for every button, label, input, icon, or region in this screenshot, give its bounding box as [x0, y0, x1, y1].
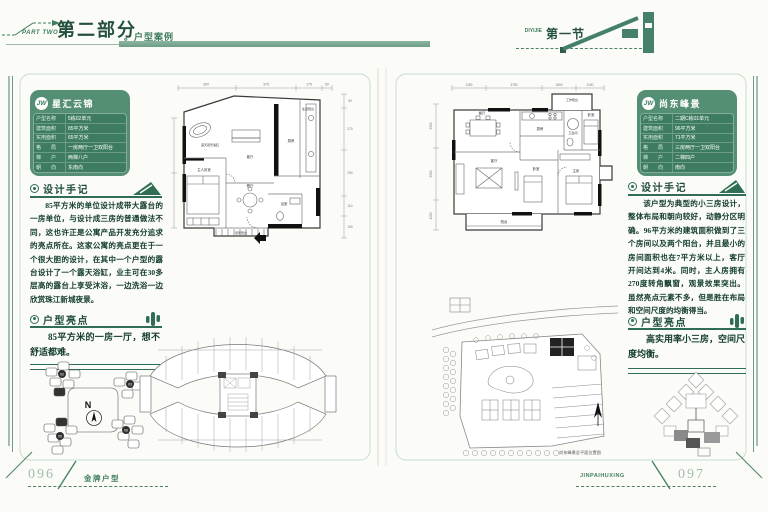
spec-value: 65平方米: [66, 134, 126, 141]
outer-walls: [184, 96, 320, 236]
svg-text:厨房: 厨房: [288, 138, 295, 143]
spec-value: 71平方米: [673, 134, 733, 141]
offsite-building: [450, 298, 470, 312]
svg-text:06: 06: [124, 428, 128, 432]
svg-text:厨房: 厨房: [537, 126, 544, 131]
footer-slash: [58, 461, 76, 489]
svg-text:卧室: 卧室: [533, 166, 540, 171]
right-unit-floorplan: 1150 3750 1800 1100 3300 3900 1200: [424, 80, 616, 238]
ring-bullet-icon: [628, 182, 637, 191]
right-site-plan: 尚东峰景总平面位置图: [432, 296, 618, 458]
right-design-notes-heading: 设计手记: [628, 178, 746, 195]
svg-text:375: 375: [263, 83, 269, 87]
svg-text:3900: 3900: [429, 170, 433, 177]
ring-bullet-icon: [628, 317, 637, 326]
spec-label: 户型名称: [34, 114, 66, 123]
table-row: 朝 向南向: [641, 163, 733, 172]
heading-rule: [30, 196, 162, 198]
svg-text:1200: 1200: [429, 212, 433, 219]
site-boundary: [460, 334, 604, 448]
left-plate-plan: [136, 318, 340, 468]
svg-text:150: 150: [347, 225, 353, 229]
table-row: 户型名称二期C栋01单元: [641, 114, 733, 124]
spec-label: 梯 户: [641, 153, 673, 162]
table-row: 格 局一房两厅一卫双阳台: [34, 143, 126, 153]
spec-value: 三房两厅一卫双阳台: [673, 144, 733, 151]
spec-value: 二期C栋01单元: [673, 115, 733, 122]
left-footer-label: 金牌户型: [84, 473, 120, 484]
table-row: 实用面积65平方米: [34, 134, 126, 144]
svg-text:工作阳台: 工作阳台: [566, 97, 578, 102]
right-footer-label: JINPAIHUXING: [580, 473, 625, 479]
table-row: 梯 户二梯四户: [641, 153, 733, 163]
table-row: 户型名称5栋02单元: [34, 114, 126, 124]
header-rule: [6, 44, 119, 45]
dash-arrow-icon: [2, 16, 64, 42]
book-spread: { "header": { "part_en": "PART TWO", "pa…: [0, 0, 768, 512]
svg-text:卫生间: 卫生间: [568, 130, 577, 135]
left-project-title: 星汇云锦: [52, 97, 94, 110]
svg-text:主卧: 主卧: [573, 168, 580, 173]
right-card-header: JW 尚东峰景: [640, 93, 734, 113]
footer-dash-rule: [28, 486, 168, 487]
spec-value: 东南向: [66, 164, 126, 171]
left-key-plan: 02 03 05 06 N: [36, 354, 146, 464]
svg-text:浴室: 浴室: [281, 201, 288, 206]
footer-dash-rule: [576, 486, 716, 487]
svg-text:1150: 1150: [466, 83, 473, 87]
right-info-card: JW 尚东峰景 户型名称二期C栋01单元 建筑面积96平方米 实用面积71平方米…: [637, 90, 737, 176]
svg-text:N: N: [85, 400, 92, 410]
spec-value: 南向: [673, 164, 733, 171]
svg-text:1800: 1800: [555, 83, 562, 87]
spec-label: 建筑面积: [34, 124, 66, 133]
right-highlight-body: 高实用率小三房，空间尺度均衡。: [628, 332, 745, 362]
spec-label: 朝 向: [641, 163, 673, 172]
svg-text:270: 270: [347, 127, 353, 131]
svg-text:03: 03: [128, 382, 132, 386]
unit-cluster-nw: [46, 362, 80, 396]
roof-house-icon: [132, 180, 162, 197]
svg-text:餐厅: 餐厅: [247, 183, 254, 188]
left-spec-table: 户型名称5栋02单元 建筑面积85平方米 实用面积65平方米 格 局一房两厅一卫…: [33, 113, 127, 173]
section-title: 户型亮点: [641, 314, 687, 329]
spec-label: 实用面积: [641, 134, 673, 143]
table-row: 朝 向东南向: [34, 163, 126, 172]
spec-label: 实用面积: [34, 134, 66, 143]
site-plan-caption: 尚东峰景总平面位置图: [559, 449, 601, 456]
spec-value: 两梯八户: [66, 154, 126, 161]
plate-core: [674, 408, 720, 456]
left-design-notes-body: 85平方米的单位设计成带大露台的一房单位，与设计成三房的普通做法不同，这也许正是…: [30, 199, 163, 306]
left-page-number: 096: [28, 467, 55, 483]
brand-logo-icon: JW: [642, 97, 655, 110]
svg-text:3300: 3300: [429, 122, 433, 129]
right-key-plate: [646, 364, 746, 466]
plate-outline: [140, 345, 336, 448]
spec-value: 一房两厅一卫双阳台: [66, 144, 126, 151]
right-design-notes-body: 该户型为典型的小三房设计，整体布局和朝向较好，动静分区明确。96平方米的建筑面积…: [628, 197, 745, 318]
spec-value: 96平方米: [673, 125, 733, 132]
left-info-card: JW 星汇云锦 户型名称5栋02单元 建筑面积85平方米 实用面积65平方米 格…: [30, 90, 130, 176]
left-design-notes-heading: 设计手记: [30, 180, 162, 197]
svg-text:餐厅: 餐厅: [479, 111, 486, 116]
svg-text:观景阳台: 观景阳台: [235, 230, 247, 235]
svg-text:露天观景浴缸: 露天观景浴缸: [201, 142, 219, 147]
header-green-bar: [119, 41, 430, 47]
spec-value: 二梯四户: [673, 154, 733, 161]
spec-label: 朝 向: [34, 163, 66, 172]
svg-text:360: 360: [203, 83, 209, 87]
svg-text:175: 175: [306, 83, 312, 87]
section-title: 设计手记: [43, 181, 89, 196]
section-title: 设计手记: [641, 179, 687, 194]
svg-text:05: 05: [58, 434, 62, 438]
part-number-en: PART TWO: [22, 30, 58, 36]
svg-text:110: 110: [347, 204, 352, 208]
heading-rule: [628, 194, 746, 196]
section-number-en: DIYIJIE: [516, 28, 542, 34]
spec-label: 格 局: [34, 143, 66, 152]
plate-wings: [654, 372, 738, 436]
roof-house-icon: [718, 178, 746, 195]
table-row: 建筑面积96平方米: [641, 124, 733, 134]
svg-text:1100: 1100: [587, 83, 594, 87]
svg-text:90: 90: [348, 99, 352, 103]
spec-label: 建筑面积: [641, 124, 673, 133]
svg-text:02: 02: [60, 372, 64, 376]
svg-text:客厅: 客厅: [491, 158, 498, 163]
svg-text:卧室: 卧室: [588, 112, 595, 117]
spec-value: 85平方米: [66, 125, 126, 132]
right-project-title: 尚东峰景: [659, 97, 701, 110]
brand-logo-icon: JW: [35, 97, 48, 110]
highlighted-building: [550, 338, 574, 356]
section-title: 户型亮点: [43, 312, 89, 327]
svg-text:客厅: 客厅: [247, 154, 254, 159]
table-row: 格 局三房两厅一卫双阳台: [641, 143, 733, 153]
table-row: 梯 户两梯八户: [34, 153, 126, 163]
table-row: 建筑面积85平方米: [34, 124, 126, 134]
left-unit-floorplan: 360 375 175 50 90 270 290 110 150: [170, 78, 354, 246]
heading-rule: [628, 328, 746, 330]
spec-label: 梯 户: [34, 153, 66, 162]
spec-label: 格 局: [641, 143, 673, 152]
north-compass: N: [85, 400, 102, 426]
spec-label: 户型名称: [641, 114, 673, 123]
table-row: 实用面积71平方米: [641, 134, 733, 144]
ring-bullet-icon: [30, 184, 39, 193]
svg-text:生活阳台: 生活阳台: [302, 106, 314, 111]
ring-bullet-icon: [30, 315, 39, 324]
house-icon: [558, 10, 668, 56]
left-card-header: JW 星汇云锦: [33, 93, 127, 113]
right-page-number: 097: [678, 467, 705, 483]
svg-text:主人卧室: 主人卧室: [197, 167, 211, 172]
svg-text:阳台: 阳台: [501, 219, 508, 224]
svg-text:3750: 3750: [510, 83, 517, 87]
spec-value: 5栋02单元: [66, 115, 126, 122]
svg-text:290: 290: [347, 171, 353, 175]
svg-text:50: 50: [325, 83, 329, 87]
right-spec-table: 户型名称二期C栋01单元 建筑面积96平方米 实用面积71平方米 格 局三房两厅…: [640, 113, 734, 173]
